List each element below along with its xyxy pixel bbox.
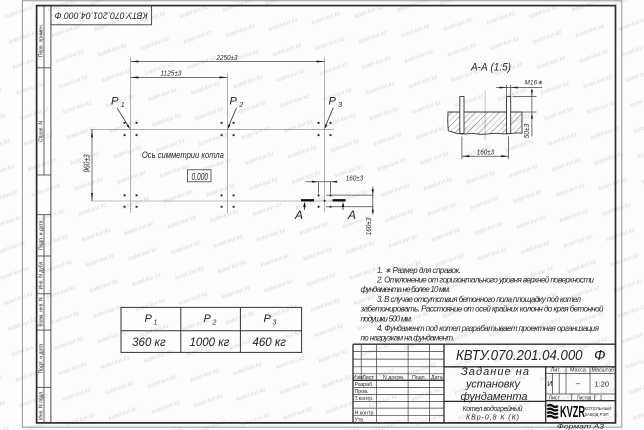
- svg-text:Подп. и дата: Подп. и дата: [39, 344, 45, 374]
- svg-text:КВр-0,8 К (К): КВр-0,8 К (К): [466, 414, 519, 421]
- svg-text:Перв. примен.: Перв. примен.: [39, 24, 45, 57]
- svg-text:Котел водогрейный: Котел водогрейный: [463, 405, 523, 413]
- svg-text:КВТУ.070.201.04.000 Ф: КВТУ.070.201.04.000 Ф: [54, 9, 147, 20]
- svg-text:P: P: [204, 313, 212, 325]
- svg-text:3: 3: [273, 319, 277, 326]
- svg-text:N докум.: N докум.: [383, 375, 404, 381]
- svg-text:160±3: 160±3: [364, 217, 373, 235]
- svg-text:Инв. N подл.: Инв. N подл.: [39, 390, 45, 419]
- svg-text:1000 кг: 1000 кг: [189, 337, 229, 349]
- svg-text:460 кг: 460 кг: [252, 337, 286, 349]
- svg-text:160±3: 160±3: [477, 147, 495, 156]
- svg-text:Взам. инв. N: Взам. инв. N: [39, 297, 45, 327]
- svg-text:1:20: 1:20: [594, 379, 609, 388]
- svg-text:160±3: 160±3: [346, 173, 364, 182]
- svg-text:KVZR: KVZR: [560, 404, 585, 421]
- svg-text:960±3: 960±3: [82, 154, 91, 173]
- svg-text:Справ. N: Справ. N: [39, 121, 45, 142]
- svg-text:М16∗: М16∗: [525, 79, 544, 86]
- svg-text:1125±3: 1125±3: [161, 69, 183, 78]
- svg-text:2. Отклонение от горизонтально: 2. Отклонение от горизонтального уровня …: [376, 276, 595, 285]
- svg-text:1: 1: [121, 102, 125, 109]
- svg-text:–: –: [576, 379, 581, 388]
- svg-text:P: P: [230, 96, 238, 108]
- svg-text:фундамента не более 10 мм.: фундамента не более 10 мм.: [361, 285, 451, 294]
- svg-text:4. Фундамент под котел разраба: 4. Фундамент под котел разрабатывает про…: [377, 324, 600, 333]
- svg-text:установку: установку: [465, 379, 522, 391]
- svg-text:Утв.: Утв.: [355, 417, 365, 423]
- svg-text:А: А: [347, 208, 356, 222]
- svg-text:Ось симметрии котла: Ось симметрии котла: [142, 150, 224, 160]
- svg-text:P: P: [264, 313, 272, 325]
- svg-text:0,000: 0,000: [192, 172, 209, 183]
- svg-text:Разраб.: Разраб.: [355, 382, 374, 388]
- svg-text:Задание на: Задание на: [461, 366, 529, 378]
- svg-text:Лит.: Лит.: [551, 368, 561, 374]
- svg-text:1: 1: [600, 395, 603, 401]
- svg-text:Подп. и дата: Подп. и дата: [39, 220, 45, 250]
- svg-text:по нагрузкам на фундамент.: по нагрузкам на фундамент.: [361, 334, 455, 343]
- svg-text:1. ∗ Размер для справок.: 1. ∗ Размер для справок.: [377, 266, 461, 275]
- svg-text:Пров.: Пров.: [355, 389, 369, 395]
- svg-text:3. В случае отсутствия бетонно: 3. В случае отсутствия бетонного пола пл…: [377, 295, 581, 304]
- svg-text:Инв. N дубл.: Инв. N дубл.: [39, 260, 45, 289]
- svg-text:Т.контр.: Т.контр.: [355, 396, 374, 402]
- svg-text:Дата: Дата: [431, 375, 443, 381]
- svg-text:Листов: Листов: [577, 395, 592, 401]
- svg-text:2: 2: [238, 102, 243, 109]
- svg-text:Подп.: Подп.: [412, 375, 426, 381]
- svg-text:забетонировать. Расстояние от: забетонировать. Расстояние от осей крайн…: [360, 305, 605, 314]
- svg-text:2250±3: 2250±3: [216, 53, 239, 62]
- svg-text:P: P: [329, 96, 337, 108]
- svg-text:ЗАВОД РЭП: ЗАВОД РЭП: [585, 412, 609, 418]
- svg-text:Масштаб: Масштаб: [591, 368, 614, 374]
- svg-text:подушки 500 мм.: подушки 500 мм.: [361, 314, 413, 323]
- svg-text:И: И: [547, 379, 552, 388]
- svg-text:А-А (1:5): А-А (1:5): [470, 61, 511, 73]
- svg-text:2: 2: [212, 319, 217, 326]
- svg-text:Лист: Лист: [549, 395, 561, 401]
- svg-text:P: P: [145, 313, 153, 325]
- svg-text:P: P: [111, 96, 119, 108]
- svg-text:А: А: [294, 208, 303, 222]
- svg-text:Формат А3: Формат А3: [557, 424, 604, 430]
- svg-text:фундамента: фундамента: [461, 391, 528, 403]
- svg-text:Н.контр.: Н.контр.: [355, 410, 375, 416]
- svg-text:50±3: 50±3: [522, 123, 531, 138]
- svg-text:3: 3: [338, 102, 342, 109]
- svg-text:Лист: Лист: [362, 375, 374, 381]
- svg-text:Ф: Ф: [594, 348, 606, 364]
- svg-text:Масса: Масса: [570, 368, 586, 374]
- svg-text:360 кг: 360 кг: [132, 337, 166, 349]
- svg-text:КВТУ.070.201.04.000: КВТУ.070.201.04.000: [456, 348, 583, 364]
- svg-text:1: 1: [154, 319, 158, 326]
